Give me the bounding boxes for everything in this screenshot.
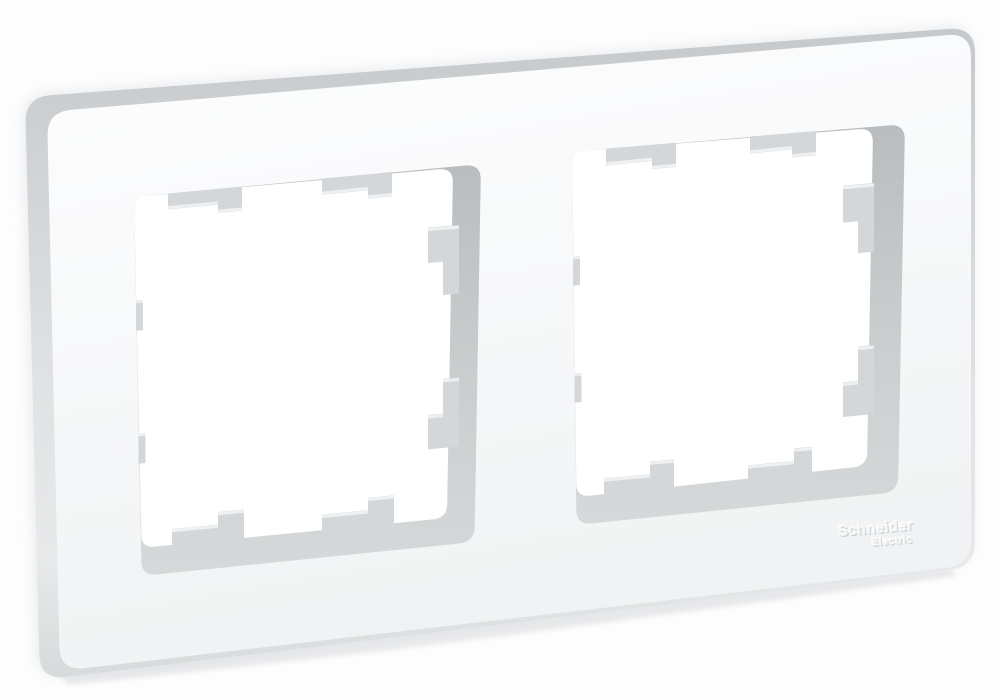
product-photo: Schneider Schneider Schneider Electric E…: [0, 0, 1000, 700]
opening-left: [134, 165, 480, 574]
frame-render-canvas: Schneider Schneider Schneider Electric E…: [0, 0, 1000, 700]
opening-left-cutout: [134, 169, 453, 547]
opening-right-cutout: [572, 129, 873, 496]
opening-right: [572, 125, 904, 523]
